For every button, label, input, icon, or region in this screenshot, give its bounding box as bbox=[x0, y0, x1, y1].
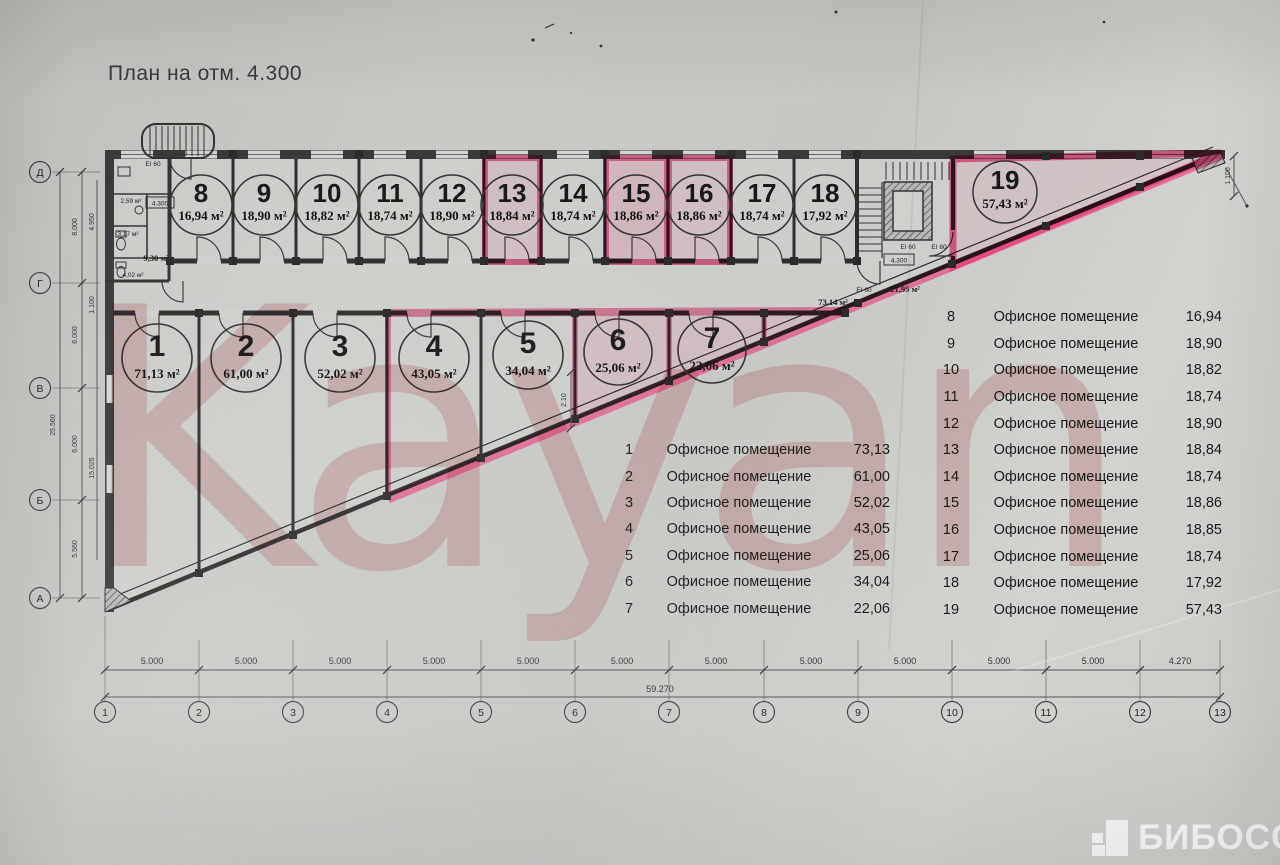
svg-text:5: 5 bbox=[520, 327, 537, 360]
table-row: 4Офисное помещение43,05 bbox=[612, 516, 890, 542]
svg-text:57,43 м²: 57,43 м² bbox=[982, 196, 1027, 211]
table-row: 10Офисное помещение18,82 bbox=[934, 357, 1222, 384]
svg-text:5.560: 5.560 bbox=[72, 540, 79, 558]
svg-text:7: 7 bbox=[704, 322, 721, 355]
biboss-logo: БИБОСС bbox=[1090, 818, 1280, 858]
left-axis: 8.000 6.000 6.000 5.560 4.950 1.100 15.0… bbox=[30, 162, 101, 609]
svg-text:59.270: 59.270 bbox=[646, 684, 674, 694]
svg-text:25.560: 25.560 bbox=[50, 414, 57, 436]
svg-text:8: 8 bbox=[194, 178, 208, 208]
scanned-floor-plan: План на отм. 4.300 bbox=[0, 0, 1280, 865]
svg-text:5: 5 bbox=[478, 707, 484, 719]
svg-text:4.300: 4.300 bbox=[891, 258, 908, 265]
svg-text:5.000: 5.000 bbox=[800, 656, 823, 666]
svg-text:5.000: 5.000 bbox=[894, 656, 917, 666]
svg-text:Б: Б bbox=[37, 495, 44, 507]
table-row: 13Офисное помещение18,84 bbox=[934, 437, 1222, 464]
svg-text:1: 1 bbox=[102, 707, 108, 719]
svg-text:4.300: 4.300 bbox=[152, 201, 169, 208]
table-row: 12Офисное помещение18,90 bbox=[934, 410, 1222, 437]
svg-text:13: 13 bbox=[498, 178, 527, 208]
svg-text:Г: Г bbox=[37, 278, 43, 290]
table-row: 5Офисное помещение25,06 bbox=[612, 543, 890, 569]
table-row: 1Офисное помещение73,13 bbox=[612, 437, 890, 463]
svg-text:17,92 м²: 17,92 м² bbox=[802, 208, 847, 223]
table-row: 17Офисное помещение18,74 bbox=[934, 543, 1222, 570]
svg-text:9: 9 bbox=[257, 178, 271, 208]
svg-text:43,05 м²: 43,05 м² bbox=[411, 366, 456, 381]
svg-text:3: 3 bbox=[332, 330, 349, 363]
svg-text:61,00 м²: 61,00 м² bbox=[223, 366, 268, 381]
table-row: 19Офисное помещение57,43 bbox=[934, 597, 1222, 624]
svg-text:3,17 м²: 3,17 м² bbox=[117, 231, 139, 238]
svg-text:В: В bbox=[36, 383, 43, 395]
svg-text:11: 11 bbox=[1041, 707, 1052, 719]
svg-text:4: 4 bbox=[426, 330, 443, 363]
svg-text:12: 12 bbox=[1134, 707, 1146, 719]
svg-text:5.000: 5.000 bbox=[141, 656, 164, 666]
table-row: 14Офисное помещение18,74 bbox=[934, 464, 1222, 491]
table-row: 7Офисное помещение22,06 bbox=[612, 595, 890, 621]
svg-text:4.270: 4.270 bbox=[1169, 656, 1192, 666]
svg-text:5.000: 5.000 bbox=[517, 656, 540, 666]
table-row: 11Офисное помещение18,74 bbox=[934, 384, 1222, 411]
svg-text:5.000: 5.000 bbox=[423, 656, 446, 666]
svg-text:18,74 м²: 18,74 м² bbox=[550, 208, 595, 223]
table-row: 18Офисное помещение17,92 bbox=[934, 570, 1222, 597]
svg-text:5.000: 5.000 bbox=[988, 656, 1011, 666]
svg-text:1.100: 1.100 bbox=[89, 296, 96, 314]
svg-text:21,95 м²: 21,95 м² bbox=[890, 284, 920, 294]
table-row: 16Офисное помещение18,85 bbox=[934, 517, 1222, 544]
table-row: 3Офисное помещение52,02 bbox=[612, 490, 890, 516]
svg-text:11: 11 bbox=[376, 178, 404, 208]
svg-text:34,04 м²: 34,04 м² bbox=[505, 363, 550, 378]
svg-text:6.000: 6.000 bbox=[72, 435, 79, 453]
svg-text:9,30 м²: 9,30 м² bbox=[143, 253, 169, 263]
svg-text:52,02 м²: 52,02 м² bbox=[317, 366, 362, 381]
svg-text:5.000: 5.000 bbox=[329, 656, 352, 666]
svg-text:22,06 м²: 22,06 м² bbox=[689, 358, 734, 373]
svg-text:18,82 м²: 18,82 м² bbox=[304, 208, 349, 223]
svg-text:4,02 м²: 4,02 м² bbox=[122, 272, 144, 279]
svg-text:18,74 м²: 18,74 м² bbox=[367, 208, 412, 223]
bottom-axis: 5.000 5.000 5.000 5.000 5.000 5.000 5.00… bbox=[95, 616, 1231, 723]
svg-text:18,84 м²: 18,84 м² bbox=[489, 208, 534, 223]
svg-text:8: 8 bbox=[761, 707, 767, 719]
svg-text:А: А bbox=[36, 593, 43, 605]
svg-text:10: 10 bbox=[946, 707, 958, 719]
svg-text:10: 10 bbox=[313, 178, 342, 208]
svg-text:15.025: 15.025 bbox=[89, 457, 96, 479]
svg-text:73,14 м²: 73,14 м² bbox=[818, 297, 848, 307]
svg-text:71,13 м²: 71,13 м² bbox=[134, 366, 179, 381]
svg-text:5.000: 5.000 bbox=[705, 656, 728, 666]
svg-text:5.000: 5.000 bbox=[611, 656, 634, 666]
svg-text:15: 15 bbox=[622, 178, 651, 208]
svg-text:18,90 м²: 18,90 м² bbox=[241, 208, 286, 223]
svg-text:EI 60: EI 60 bbox=[856, 287, 872, 294]
svg-text:18: 18 bbox=[811, 178, 840, 208]
svg-text:13: 13 bbox=[1214, 707, 1226, 719]
table-row: 2Офисное помещение61,00 bbox=[612, 463, 890, 489]
svg-text:16,94 м²: 16,94 м² bbox=[178, 208, 223, 223]
svg-text:18,86 м²: 18,86 м² bbox=[676, 208, 721, 223]
svg-text:12: 12 bbox=[438, 178, 467, 208]
biboss-logo-icon bbox=[1090, 818, 1130, 858]
svg-text:3: 3 bbox=[290, 707, 296, 719]
svg-text:2: 2 bbox=[196, 707, 202, 719]
svg-text:5.000: 5.000 bbox=[235, 656, 258, 666]
svg-text:EI 60: EI 60 bbox=[931, 244, 947, 251]
svg-text:5.000: 5.000 bbox=[1082, 656, 1105, 666]
svg-text:18,86 м²: 18,86 м² bbox=[613, 208, 658, 223]
svg-text:2: 2 bbox=[238, 330, 255, 363]
svg-text:9: 9 bbox=[855, 707, 861, 719]
svg-text:18,90 м²: 18,90 м² bbox=[429, 208, 474, 223]
table-row: 9Офисное помещение18,90 bbox=[934, 331, 1222, 358]
svg-text:18,74 м²: 18,74 м² bbox=[739, 208, 784, 223]
svg-text:2.10: 2.10 bbox=[561, 393, 568, 407]
svg-text:2,59 м²: 2,59 м² bbox=[120, 198, 142, 205]
svg-text:8.000: 8.000 bbox=[72, 218, 79, 236]
svg-text:14: 14 bbox=[559, 178, 588, 208]
svg-text:Д: Д bbox=[36, 167, 43, 179]
svg-text:6: 6 bbox=[572, 707, 578, 719]
table-row: 6Офисное помещение34,04 bbox=[612, 569, 890, 595]
svg-text:4: 4 bbox=[384, 707, 390, 719]
svg-text:17: 17 bbox=[748, 178, 777, 208]
svg-text:25,06 м²: 25,06 м² bbox=[595, 360, 640, 375]
svg-text:16: 16 bbox=[685, 178, 714, 208]
svg-text:7: 7 bbox=[666, 707, 672, 719]
photo-specks bbox=[531, 11, 1105, 48]
area-table-right: 8Офисное помещение16,94 9Офисное помещен… bbox=[934, 304, 1222, 623]
svg-text:6: 6 bbox=[610, 324, 627, 357]
svg-text:19: 19 bbox=[991, 165, 1020, 195]
biboss-logo-text: БИБОСС bbox=[1138, 818, 1280, 858]
svg-text:1: 1 bbox=[149, 330, 166, 363]
table-row: 8Офисное помещение16,94 bbox=[934, 304, 1222, 331]
table-row: 15Офисное помещение18,86 bbox=[934, 490, 1222, 517]
svg-text:EI 60: EI 60 bbox=[145, 161, 161, 168]
svg-text:4.950: 4.950 bbox=[89, 213, 96, 231]
svg-text:6.000: 6.000 bbox=[72, 326, 79, 344]
area-table-left: 1Офисное помещение73,13 2Офисное помещен… bbox=[612, 437, 890, 622]
page-title: План на отм. 4.300 bbox=[108, 62, 302, 86]
